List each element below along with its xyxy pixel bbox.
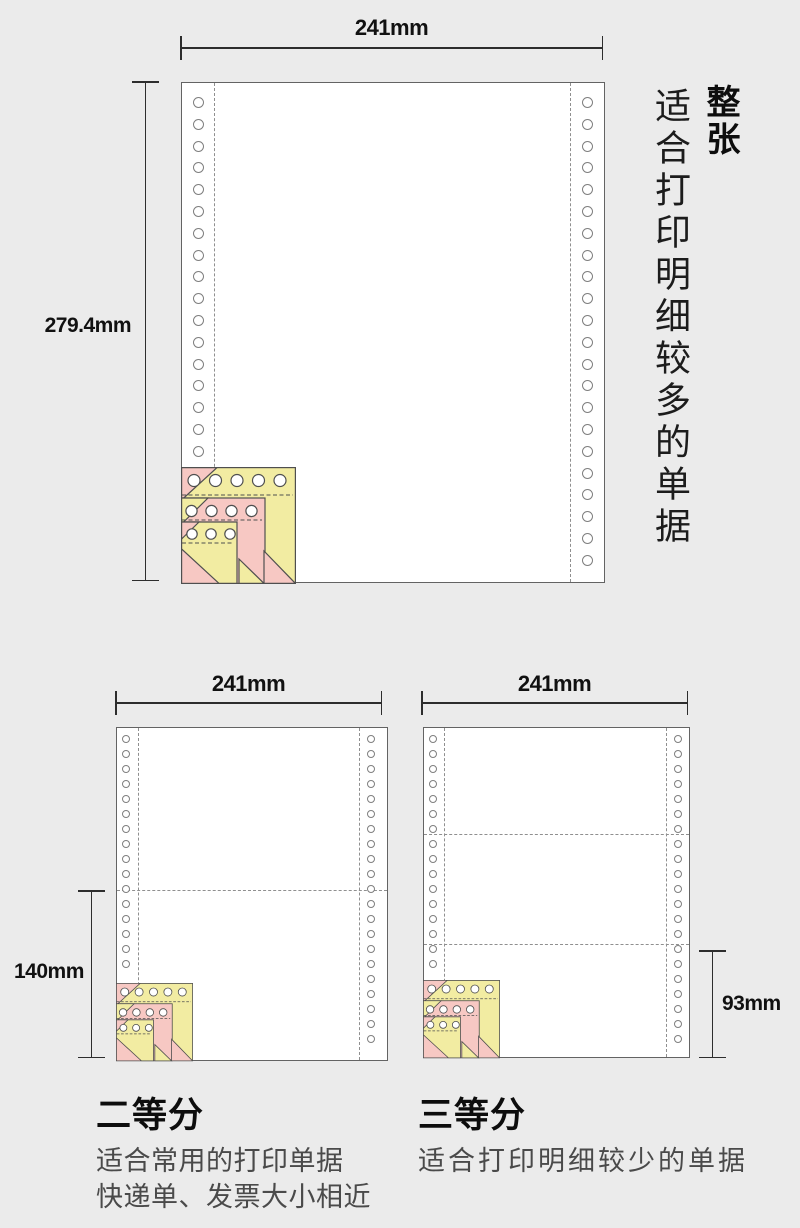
tractor-hole <box>582 533 593 544</box>
tractor-hole <box>193 119 204 130</box>
tractor-hole <box>429 945 437 953</box>
dimension-line <box>712 950 714 1058</box>
tractor-hole <box>674 765 682 773</box>
tractor-hole <box>582 184 593 195</box>
corner-fold-graphic <box>423 980 500 1058</box>
tractor-hole <box>122 930 130 938</box>
full-sheet-paper <box>181 82 605 583</box>
tractor-hole <box>193 359 204 370</box>
tractor-hole <box>367 840 375 848</box>
tractor-hole <box>582 97 593 108</box>
half-sheet-height-dimension <box>78 890 105 1058</box>
perforation-line-right <box>359 728 360 1060</box>
tractor-hole <box>674 1020 682 1028</box>
half-sheet-height-label: 140mm <box>14 960 82 984</box>
tractor-hole <box>582 250 593 261</box>
dimension-line <box>180 47 603 49</box>
tractor-hole <box>429 960 437 968</box>
tractor-hole <box>429 810 437 818</box>
tractor-hole <box>582 468 593 479</box>
full-sheet-title: 整张 <box>696 84 745 158</box>
full-sheet-height-label: 279.4mm <box>28 314 131 338</box>
tractor-hole <box>367 1005 375 1013</box>
tractor-hole <box>193 184 204 195</box>
half-sheet-title: 二等分 <box>96 1087 204 1138</box>
tractor-hole <box>582 315 593 326</box>
tractor-hole <box>193 337 204 348</box>
tractor-hole <box>429 885 437 893</box>
tractor-hole <box>122 885 130 893</box>
tractor-hole <box>674 915 682 923</box>
tractor-hole <box>367 765 375 773</box>
tractor-hole <box>429 795 437 803</box>
tractor-hole <box>122 810 130 818</box>
tractor-hole <box>367 930 375 938</box>
tractor-hole <box>582 380 593 391</box>
tractor-hole <box>367 885 375 893</box>
tractor-hole <box>582 402 593 413</box>
half-divider-perforation <box>117 890 387 891</box>
tractor-hole <box>582 424 593 435</box>
full-sheet-description: 适合打印明细较多的单据 <box>644 87 696 549</box>
tractor-hole <box>674 735 682 743</box>
dimension-tick <box>699 1057 726 1059</box>
tractor-hole <box>674 840 682 848</box>
dimension-tick <box>78 1057 105 1059</box>
tractor-hole <box>429 825 437 833</box>
tractor-hole <box>367 870 375 878</box>
tractor-hole <box>193 424 204 435</box>
dimension-line <box>115 702 382 704</box>
dimension-line <box>145 81 147 581</box>
tractor-hole <box>367 960 375 968</box>
tractor-hole <box>122 855 130 863</box>
tractor-hole <box>122 870 130 878</box>
tractor-hole <box>193 141 204 152</box>
tractor-hole <box>582 119 593 130</box>
tractor-hole <box>674 930 682 938</box>
tractor-hole <box>429 780 437 788</box>
tractor-hole <box>582 293 593 304</box>
tractor-hole <box>367 1020 375 1028</box>
tractor-hole <box>429 840 437 848</box>
tractor-hole <box>674 1005 682 1013</box>
third-sheet-width-dimension <box>421 691 688 715</box>
tractor-hole <box>122 795 130 803</box>
tractor-hole <box>193 315 204 326</box>
tractor-hole <box>122 750 130 758</box>
third-sheet-paper <box>423 727 690 1058</box>
page-root: { "page": { "background": "#ebebeb" }, "… <box>0 0 800 1228</box>
tractor-hole <box>193 97 204 108</box>
tractor-hole <box>367 900 375 908</box>
dimension-line <box>91 890 93 1058</box>
half-sheet-description-2: 快递单、发票大小相近 <box>96 1175 371 1214</box>
tractor-hole <box>582 162 593 173</box>
dimension-tick <box>132 580 159 582</box>
tractor-hole <box>367 810 375 818</box>
tractor-hole <box>193 446 204 457</box>
tractor-hole <box>582 555 593 566</box>
tractor-hole <box>122 840 130 848</box>
tractor-hole <box>582 359 593 370</box>
tractor-hole <box>674 945 682 953</box>
full-sheet-height-dimension <box>132 81 159 581</box>
tractor-hole <box>429 870 437 878</box>
half-sheet-width-dimension <box>115 691 382 715</box>
tractor-hole <box>582 446 593 457</box>
tractor-hole <box>674 885 682 893</box>
tractor-hole <box>193 293 204 304</box>
tractor-hole <box>122 735 130 743</box>
perforation-line-right <box>666 728 667 1057</box>
tractor-hole <box>193 206 204 217</box>
half-sheet-description-1: 适合常用的打印单据 <box>96 1139 344 1178</box>
tractor-hole <box>674 1035 682 1043</box>
tractor-hole <box>674 900 682 908</box>
tractor-hole <box>193 250 204 261</box>
tractor-hole <box>367 1035 375 1043</box>
tractor-hole <box>674 975 682 983</box>
dimension-line <box>421 702 688 704</box>
tractor-hole <box>582 206 593 217</box>
tractor-hole <box>582 511 593 522</box>
tractor-hole <box>193 402 204 413</box>
tractor-hole <box>367 750 375 758</box>
tractor-hole <box>122 915 130 923</box>
tractor-hole <box>193 380 204 391</box>
tractor-hole <box>122 900 130 908</box>
tractor-hole <box>122 765 130 773</box>
tractor-hole <box>674 795 682 803</box>
tractor-hole <box>122 780 130 788</box>
tractor-hole <box>429 765 437 773</box>
third-sheet-height-label: 93mm <box>722 992 781 1016</box>
tractor-hole <box>582 141 593 152</box>
dimension-tick <box>602 36 604 60</box>
tractor-hole <box>367 780 375 788</box>
third-divider-perforation-1 <box>424 834 689 835</box>
tractor-hole <box>122 825 130 833</box>
third-sheet-title: 三等分 <box>418 1087 526 1138</box>
third-divider-perforation-2 <box>424 944 689 945</box>
tractor-hole <box>582 337 593 348</box>
tractor-hole <box>367 795 375 803</box>
half-sheet-paper <box>116 727 388 1061</box>
tractor-hole <box>674 780 682 788</box>
tractor-hole <box>582 489 593 500</box>
tractor-hole <box>367 975 375 983</box>
tractor-hole <box>367 990 375 998</box>
tractor-hole <box>674 855 682 863</box>
tractor-hole <box>367 735 375 743</box>
corner-fold-graphic <box>116 983 193 1061</box>
third-sheet-description-1: 适合打印明细较少的单据 <box>418 1139 748 1178</box>
tractor-hole <box>674 750 682 758</box>
tractor-hole <box>429 750 437 758</box>
tractor-hole <box>193 228 204 239</box>
tractor-hole <box>582 228 593 239</box>
tractor-hole <box>674 990 682 998</box>
tractor-hole <box>674 960 682 968</box>
tractor-hole <box>193 271 204 282</box>
tractor-hole <box>674 825 682 833</box>
tractor-hole <box>582 271 593 282</box>
tractor-hole <box>193 162 204 173</box>
tractor-hole <box>674 810 682 818</box>
full-sheet-width-dimension <box>180 36 603 60</box>
tractor-hole <box>367 945 375 953</box>
third-sheet-height-dimension <box>699 950 726 1058</box>
tractor-hole <box>674 870 682 878</box>
tractor-hole <box>367 855 375 863</box>
tractor-hole <box>429 735 437 743</box>
tractor-hole <box>429 930 437 938</box>
tractor-hole <box>367 825 375 833</box>
tractor-hole <box>367 915 375 923</box>
tractor-hole <box>429 915 437 923</box>
perforation-line-right <box>570 83 571 582</box>
tractor-hole <box>429 855 437 863</box>
tractor-hole <box>122 960 130 968</box>
corner-fold-graphic <box>181 467 296 584</box>
tractor-hole <box>122 945 130 953</box>
dimension-tick <box>381 691 383 715</box>
tractor-hole <box>429 900 437 908</box>
dimension-tick <box>687 691 689 715</box>
